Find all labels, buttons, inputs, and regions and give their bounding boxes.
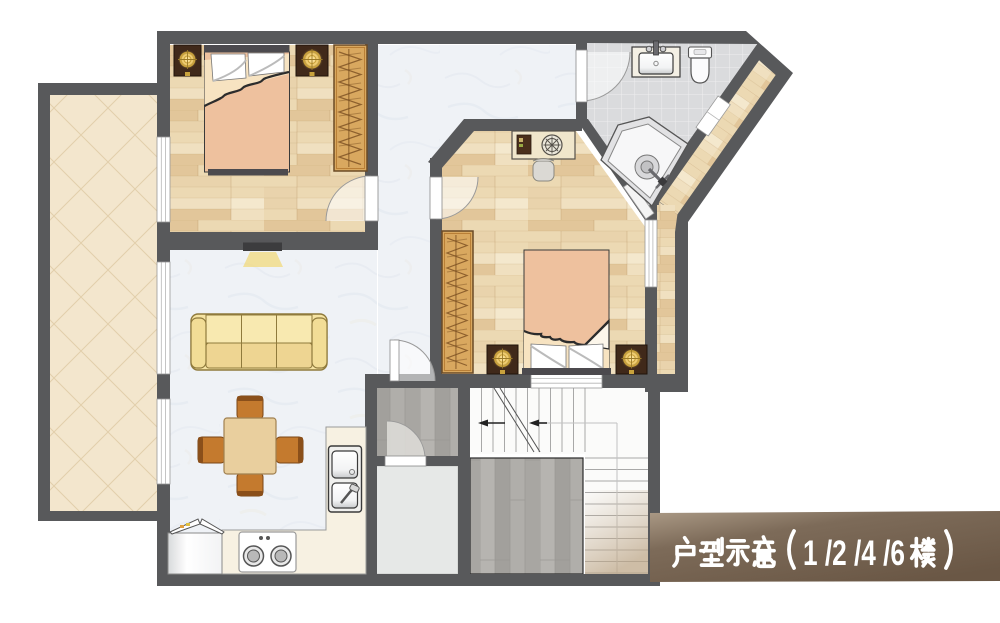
svg-text:1 /2 /4 /6: 1 /2 /4 /6 [803,534,905,573]
